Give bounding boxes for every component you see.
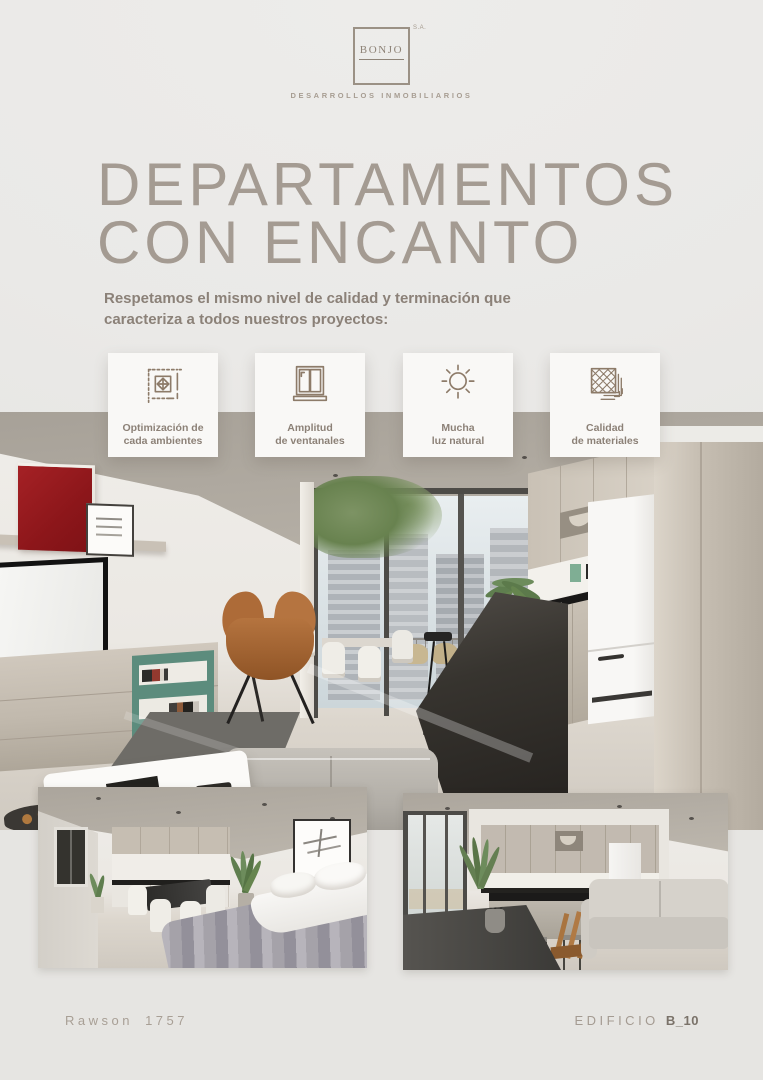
fridge [588, 494, 658, 725]
butterfly-chair [222, 592, 322, 727]
framed-print [86, 503, 134, 557]
ceiling-spotlight [689, 817, 694, 820]
tv-screen [0, 562, 103, 662]
feature-card-windows: Amplitud de ventanales [255, 353, 365, 457]
vase [485, 909, 505, 933]
fridge-handle [598, 654, 624, 661]
sofa-seat [589, 917, 728, 949]
counter-plant-box [570, 564, 581, 582]
dining-chair [128, 885, 147, 915]
balcony-hint [409, 889, 463, 909]
window [54, 827, 88, 887]
logo-suffix: S.A. [413, 25, 426, 31]
feature-label: Calidad de materiales [550, 422, 660, 448]
title-line2: CON ENCANTO [97, 214, 678, 272]
plant-pot [91, 897, 104, 913]
photo-bedroom [38, 787, 367, 968]
books [142, 668, 168, 682]
intro-text: Respetamos el mismo nivel de calidad y t… [104, 288, 511, 330]
art-trunk [318, 829, 323, 857]
floor-tiles-icon [582, 361, 628, 407]
sun-icon [435, 361, 481, 407]
feature-label: Optimización de cada ambientes [108, 422, 218, 448]
window-frame-bar [403, 811, 467, 815]
fridge-door-seam [588, 642, 658, 653]
bonjo-logo: BONJO [353, 27, 410, 85]
footer-building: EDIFICIO B_10 [574, 1013, 699, 1028]
dining-chair [358, 646, 381, 682]
print-script-lines [96, 518, 122, 521]
footer-address: Rawson 1757 [65, 1013, 188, 1028]
photo-living [403, 793, 728, 970]
ceiling-spotlight [262, 803, 267, 806]
small-plant [84, 873, 110, 913]
stool-seat [424, 632, 452, 641]
kitchen-open-niche [555, 831, 583, 851]
fridge-vent [592, 690, 652, 702]
floor-plan-dimensions-icon [140, 361, 186, 407]
sofa [589, 879, 728, 970]
page-title: DEPARTAMENTOS CON ENCANTO [97, 156, 678, 272]
column-seam [700, 440, 702, 830]
sofa-cushion-seam [659, 881, 661, 919]
logo-wordmark: BONJO [359, 44, 404, 60]
feature-label: Mucha luz natural [403, 422, 513, 448]
ceiling-spotlight [617, 805, 622, 808]
main-photo [0, 412, 763, 830]
pretzel [22, 814, 33, 825]
chair-leg [226, 670, 252, 724]
plant-leaf [95, 875, 106, 899]
intro-line2: caracteriza a todos nuestros proyectos: [104, 309, 511, 330]
sofa-top-edge [234, 758, 429, 760]
feature-label: Amplitud de ventanales [255, 422, 365, 448]
ceiling-spotlight [176, 811, 181, 814]
ceiling-beam [654, 426, 763, 442]
backsplash [112, 854, 230, 880]
feature-card-materials: Calidad de materiales [550, 353, 660, 457]
logo-tagline: DESARROLLOS INMOBILIARIOS [0, 91, 763, 100]
intro-line1: Respetamos el mismo nivel de calidad y t… [104, 288, 511, 309]
dining-chair [392, 630, 413, 663]
building-label: EDIFICIO [574, 1013, 658, 1028]
window-mullion [70, 830, 72, 884]
upper-cabinets [112, 827, 230, 854]
right-wall-column [654, 440, 763, 830]
ceiling-spotlight [333, 474, 338, 477]
window-icon [287, 361, 333, 407]
feature-card-optimization: Optimización de cada ambientes [108, 353, 218, 457]
ceiling-spotlight [445, 807, 450, 810]
bowl [560, 836, 576, 845]
building-code: B_10 [666, 1013, 699, 1028]
chair-leg [288, 670, 314, 724]
ceiling-spotlight [96, 797, 101, 800]
title-line1: DEPARTAMENTOS [97, 156, 678, 214]
chair-seat [226, 618, 314, 680]
ceiling-spotlight [522, 456, 527, 459]
feature-card-light: Mucha luz natural [403, 353, 513, 457]
flyer-page: BONJO S.A. DESARROLLOS INMOBILIARIOS DEP… [0, 0, 763, 1080]
red-artwork [18, 463, 95, 553]
shelf-slot [139, 661, 207, 686]
